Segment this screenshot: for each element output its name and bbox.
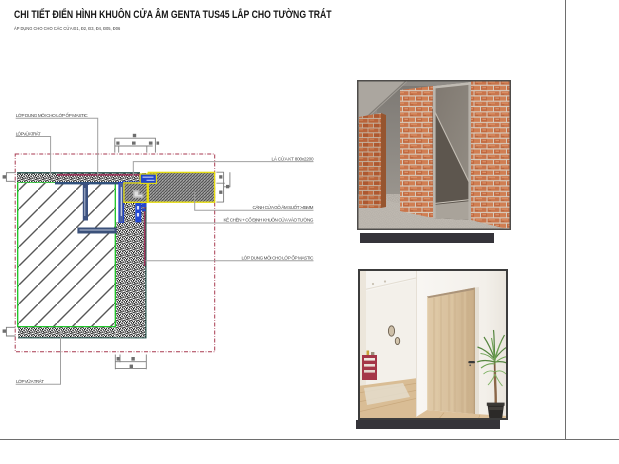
svg-text:LỚP DUNG MÔI CHO LỚP ỐP MASTIC: LỚP DUNG MÔI CHO LỚP ỐP MASTIC <box>16 112 89 118</box>
svg-text:CÁNH CỬA GỖ ÂM SUỐT >45MM: CÁNH CỬA GỖ ÂM SUỐT >45MM <box>253 204 314 210</box>
svg-text:LỚP DUNG MÔI CHO LỚP ỐP MASTIC: LỚP DUNG MÔI CHO LỚP ỐP MASTIC <box>242 255 315 261</box>
svg-text:LÁ CỬA KT 800x2200: LÁ CỬA KT 800x2200 <box>272 155 314 161</box>
svg-text:LỚP VỮA TRÁT: LỚP VỮA TRÁT <box>16 378 44 384</box>
svg-text:KÊ CHÈN + CỐ ĐỊNH KHUÔN CỬA VÀ: KÊ CHÈN + CỐ ĐỊNH KHUÔN CỬA VÀO TƯỜNG <box>224 216 314 223</box>
svg-text:LỚP VỮA TRÁT: LỚP VỮA TRÁT <box>16 130 41 136</box>
